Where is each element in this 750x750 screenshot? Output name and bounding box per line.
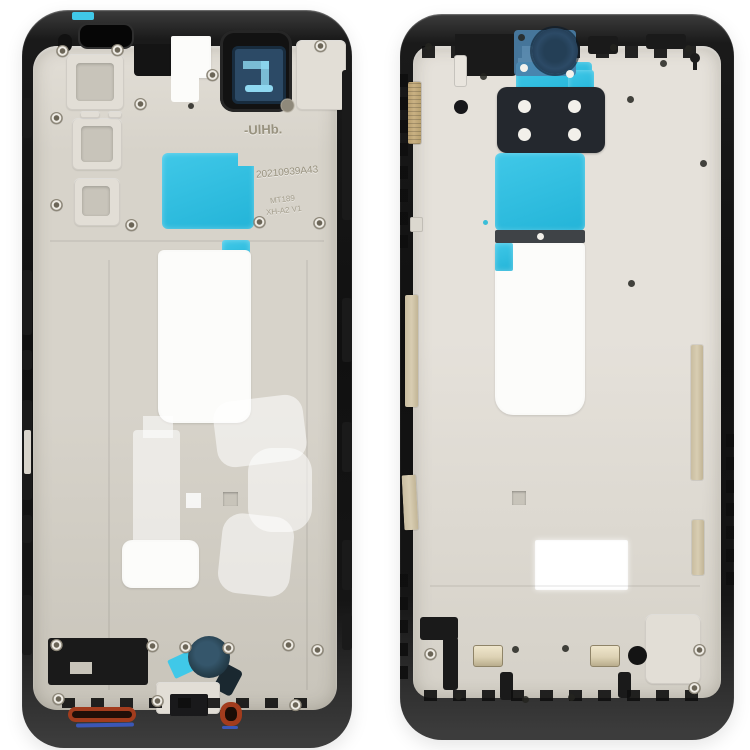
screw-hole — [50, 112, 63, 125]
screw-hole — [282, 639, 295, 652]
screw-hole — [111, 44, 124, 57]
screw-hole — [179, 641, 192, 654]
right-rail-slot — [342, 614, 352, 650]
screw-hole — [50, 199, 63, 212]
alignment-dot — [700, 160, 707, 167]
keyhole-stem — [693, 61, 697, 70]
alignment-dot — [628, 280, 635, 287]
antenna-strip-tan — [402, 475, 419, 531]
adhesive-square — [186, 493, 201, 508]
shield-plate — [66, 54, 124, 110]
screw-hole — [146, 640, 159, 653]
battery-sticker — [158, 250, 251, 423]
white-cutout-window — [535, 540, 628, 590]
sticker-hole — [568, 128, 581, 141]
screw-hole — [253, 216, 266, 229]
battery-sticker-cyan-tab-right — [495, 243, 513, 271]
speaker-gasket-red — [68, 707, 136, 722]
adhesive-blue-line — [222, 726, 238, 729]
screw-hole — [206, 69, 219, 82]
rail-slot-pill — [410, 217, 423, 232]
screw-hole — [311, 644, 324, 657]
antenna-strip-tan — [692, 520, 704, 575]
adhesive-square-hole — [223, 492, 238, 506]
screw-hole — [314, 40, 327, 53]
sticker-hole — [568, 100, 581, 113]
alignment-dot — [188, 103, 194, 109]
left-rail-slot — [22, 595, 32, 655]
alignment-dot — [627, 96, 634, 103]
screw-hole — [125, 219, 138, 232]
alignment-dot — [685, 45, 692, 52]
alignment-dot — [455, 693, 462, 700]
clip-slot — [108, 111, 122, 118]
alignment-dot — [512, 646, 519, 653]
right-rail-slot — [342, 422, 352, 472]
plate-seam — [50, 240, 324, 242]
screw-hole — [688, 682, 701, 695]
alignment-dot — [480, 73, 487, 80]
screw-hole — [693, 644, 706, 657]
screw-hole — [50, 639, 63, 652]
camera-marking-bar — [245, 85, 273, 92]
right-rail-slot — [342, 540, 352, 590]
right-rail-slot — [342, 298, 352, 362]
tape-hole-white — [566, 70, 574, 78]
spring-contact-brass — [590, 645, 620, 667]
screw-hole — [222, 642, 235, 655]
left-rail-slot — [22, 350, 32, 370]
etched-mark-text: -UlHb. — [244, 121, 283, 137]
shield-plate-recess — [76, 63, 114, 101]
screw-hole — [424, 648, 437, 661]
top-white-sticker — [171, 36, 211, 78]
screw-hole — [313, 217, 326, 230]
camera-marking-side — [261, 61, 269, 85]
sticker-hole — [518, 100, 531, 113]
sensor-sticker-black — [497, 87, 605, 153]
antenna-contact-gold — [408, 82, 421, 144]
alignment-dot — [660, 60, 667, 67]
screw-hole — [151, 695, 164, 708]
screw-hole — [134, 98, 147, 111]
speaker-hole-black — [628, 646, 647, 665]
frame-black-notch — [134, 44, 174, 76]
shield-plate — [74, 178, 120, 226]
left-rail-clips — [400, 574, 408, 684]
product-photo-canvas: -UlHb. 20210939A43 MT189 XH-A2 V1 — [0, 0, 750, 750]
alignment-dot — [568, 694, 575, 701]
tape-hole-dark — [518, 34, 525, 41]
bottom-black-shield-cutout — [70, 662, 92, 674]
plate-slot — [454, 55, 467, 87]
bottom-black-shield — [48, 638, 148, 685]
right-rail-slot — [342, 70, 352, 220]
adhesive-curve — [216, 511, 296, 598]
clip-slot — [80, 111, 100, 118]
tray-seam-left — [108, 260, 110, 690]
earpiece-grille — [78, 23, 134, 49]
dark-bar — [495, 230, 585, 243]
bottom-white-sticker — [122, 540, 199, 588]
cyan-tape-notch — [238, 153, 254, 166]
side-button — [24, 430, 31, 474]
alignment-dot — [425, 43, 432, 50]
cyan-tape-mid — [495, 153, 585, 231]
seal-ring-red — [220, 702, 242, 726]
screw-hole — [52, 693, 65, 706]
screw-hole — [289, 699, 302, 712]
right-bezel — [400, 14, 734, 740]
top-black-notch — [646, 34, 686, 49]
tiny-teal-dot — [483, 220, 488, 225]
left-rail-slot — [22, 515, 32, 543]
shield-plate-recess — [81, 126, 113, 162]
rear-camera-gasket — [532, 28, 578, 74]
plate-round-hole — [280, 98, 295, 113]
plate-square-hole — [512, 491, 526, 505]
antenna-strip-tan — [691, 345, 703, 480]
plate-seam — [430, 585, 700, 587]
alignment-dot — [610, 44, 617, 51]
left-rail-slot — [22, 98, 32, 138]
adhesive-strip — [133, 430, 180, 553]
shield-plate-recess — [82, 186, 110, 216]
top-white-sticker-tab — [171, 74, 199, 102]
left-bezel: -UlHb. 20210939A43 MT189 XH-A2 V1 — [22, 10, 352, 748]
dark-bar-hole — [537, 233, 544, 240]
bottom-black-L-patch-leg — [443, 637, 458, 690]
corner-tape-sliver — [72, 12, 94, 20]
left-rail-slot — [22, 270, 32, 335]
shield-plate — [72, 118, 122, 170]
antenna-strip-tan — [405, 295, 418, 407]
spring-contact-brass — [473, 645, 503, 667]
bottom-castellation — [424, 690, 710, 701]
alignment-dot — [562, 645, 569, 652]
alignment-dot — [522, 696, 529, 703]
screw-hole — [56, 45, 69, 58]
front-camera-window — [232, 46, 286, 104]
plate-hole-black — [454, 100, 468, 114]
tape-hole-white — [520, 64, 528, 72]
right-rail-clips — [726, 434, 734, 594]
sticker-hole — [518, 128, 531, 141]
left-rail-clips — [400, 74, 408, 254]
